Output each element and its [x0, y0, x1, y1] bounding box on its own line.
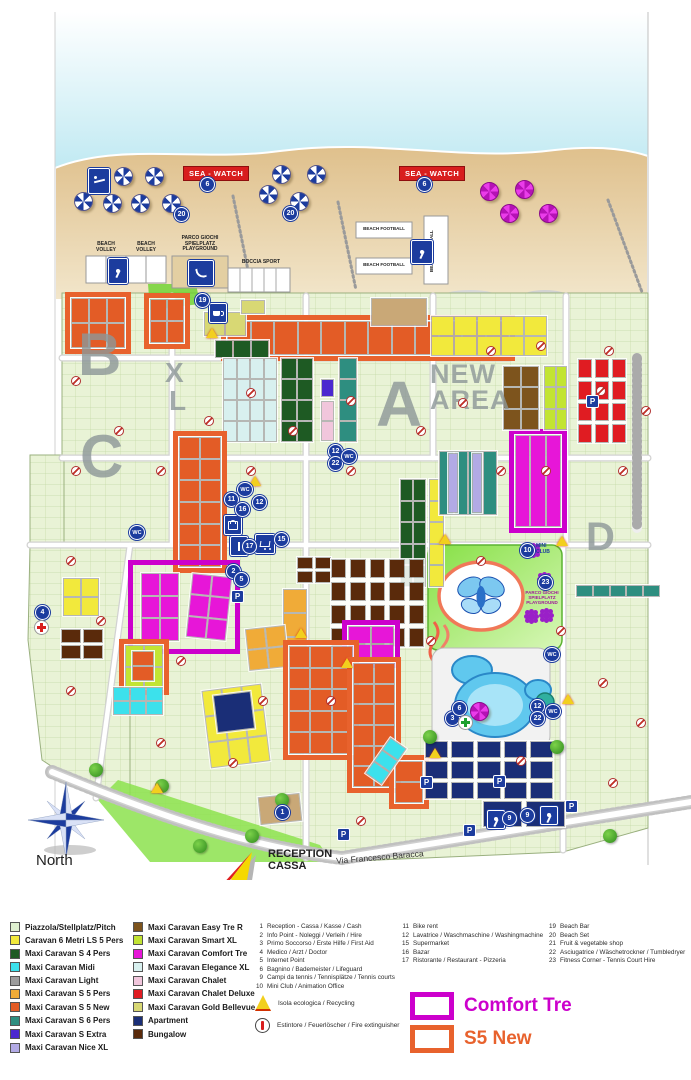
beach-umbrella-icon [470, 702, 489, 721]
pitch-marker-icon [636, 718, 646, 728]
pitch-block [311, 733, 330, 753]
pitch-cluster [214, 339, 270, 359]
reception-label: RECEPTION CASSA [268, 848, 332, 872]
highlight-outline-swatch [410, 1025, 454, 1053]
legend-pitch-type-row: Maxi Caravan Midi [10, 962, 123, 972]
pitch-block [410, 629, 423, 646]
pitch-block [332, 583, 345, 600]
beach-playground-label: PARCO GIOCHI SPIELPLATZ PLAYGROUND [172, 236, 228, 253]
legend-services-col2: 11Bike rent12Lavatrice / Waschmaschine /… [398, 923, 543, 966]
pitch-block [265, 359, 277, 378]
area-label: B [78, 326, 122, 383]
legend-pitch-type-row: Caravan 6 Metri LS 5 Pers [10, 935, 123, 945]
pitch-block [516, 436, 529, 526]
pitch-cluster [212, 690, 257, 735]
pitch-marker-icon [246, 388, 256, 398]
pitch-block [351, 583, 364, 600]
legend-service-number: 5 [252, 957, 263, 964]
pitch-block [525, 317, 546, 335]
legend-pitch-type-row: Maxi Caravan S 5 New [10, 1002, 123, 1012]
legend-service-label: Bazar [413, 949, 429, 956]
pitch-block [478, 317, 499, 335]
pitch-block [322, 322, 344, 354]
legend-service-label: Campi da tennis / Tennisplätze / Tennis … [267, 974, 395, 981]
legend-color-swatch [133, 935, 143, 945]
legend-service-label: Ristorante / Restaurant - Pizzeria [413, 957, 506, 964]
legend-pitch-type-row: Maxi Caravan Smart XL [133, 935, 255, 945]
pitch-block [505, 742, 526, 757]
map-badge-4: 4 [35, 605, 50, 620]
pitch-block [147, 702, 162, 714]
pitch-block [484, 452, 497, 514]
pitch-block [266, 626, 286, 647]
pitch-block [251, 359, 263, 378]
legend-pitch-type-label: Maxi Caravan Comfort Tre [148, 949, 247, 958]
area-label: D [586, 518, 616, 556]
pitch-cluster [112, 686, 164, 716]
highlighted-pitch-cluster [178, 436, 222, 568]
legend-service-label: Beach Set [560, 932, 589, 939]
pitch-block [531, 762, 552, 777]
pitch-cluster [244, 624, 290, 672]
pitch-block [168, 300, 183, 320]
campsite-map-page: BCXLADNEW AREA66202019122211121617152541… [0, 0, 691, 1080]
pitch-block [275, 322, 297, 354]
map-badge-12: 12 [252, 495, 267, 510]
beach-umbrella-icon [74, 192, 93, 211]
pitch-block [64, 579, 80, 596]
highlighted-pitch-cluster [347, 625, 395, 663]
north-label: North [36, 852, 73, 869]
legend-service-number: 21 [545, 940, 556, 947]
pitch-block [131, 688, 146, 700]
pitch-block [64, 598, 80, 615]
legend-service-number: 20 [545, 932, 556, 939]
supermarket-icon [255, 534, 275, 554]
pitch-block [242, 301, 264, 313]
legend-highlight-row: S5 New [410, 1025, 572, 1053]
pitch-block [161, 619, 178, 640]
pitch-marker-icon [96, 616, 106, 626]
pitch-block [189, 595, 209, 616]
pitch-marker-icon [258, 696, 268, 706]
pitch-block [340, 359, 356, 378]
pitch-block [147, 688, 162, 700]
pitch-block [142, 597, 159, 618]
legend-pitch-type-label: Maxi Caravan Smart XL [148, 936, 237, 945]
pitch-block [209, 597, 229, 618]
pitch-block [414, 523, 425, 543]
pitch-marker-icon [458, 398, 468, 408]
pitch-block [531, 742, 552, 757]
pitch-block [191, 574, 211, 595]
legend-service-number: 4 [252, 949, 263, 956]
pitch-block [611, 586, 626, 596]
pitch-block [351, 560, 364, 577]
pitch-block [201, 546, 220, 566]
pitch-block [161, 597, 178, 618]
tree-icon [245, 829, 259, 843]
pitch-cluster [62, 577, 100, 617]
legend-pitch-type-row: Maxi Caravan Gold Bellevue [133, 1002, 255, 1012]
pitch-block [201, 481, 220, 501]
parking-badge: P [565, 800, 578, 813]
pitch-block [234, 341, 250, 357]
pitch-marker-icon [516, 756, 526, 766]
pitch-block [238, 401, 250, 420]
legend-pitch-type-label: Maxi Caravan Nice XL [25, 1043, 108, 1052]
legend-highlights: Comfort TreS5 New [410, 992, 572, 1058]
beach-umbrella-icon [145, 167, 164, 186]
legend-service-row: 10Mini Club / Animation Office [252, 983, 395, 990]
legend-pitch-type-label: Piazzola/Stellplatz/Pitch [25, 923, 116, 932]
pitch-block [371, 606, 384, 623]
pitch-block [246, 628, 266, 649]
legend-service-row: 6Bagnino / Bademeister / Lifeguard [252, 966, 395, 973]
pitch-marker-icon [356, 816, 366, 826]
highlight-outline-swatch [410, 992, 454, 1020]
beach-umbrella-icon [480, 182, 499, 201]
pitch-marker-icon [476, 556, 486, 566]
pitch-marker-icon [536, 341, 546, 351]
legend-color-swatch [133, 949, 143, 959]
legend-color-swatch [133, 1016, 143, 1026]
pitch-cluster [222, 357, 278, 443]
legend-pitch-type-row: Maxi Caravan Chalet [133, 976, 255, 986]
highlight-label: S5 New [464, 1028, 532, 1050]
pitch-block [372, 299, 426, 325]
pitch-block [284, 590, 306, 612]
pitch-block [531, 783, 552, 798]
pitch-block [430, 545, 443, 565]
legend-color-swatch [10, 962, 20, 972]
fire-extinguisher-icon [255, 1018, 270, 1033]
legend-color-swatch [10, 935, 20, 945]
map-badge-6: 6 [417, 177, 432, 192]
wc-badge: WC [129, 525, 145, 540]
pitch-block [596, 425, 608, 442]
parking-badge: P [493, 775, 506, 788]
playground-equipment-icon [528, 613, 535, 620]
pitch-block [251, 401, 263, 420]
legend-pitch-type-row: Maxi Caravan Easy Tre R [133, 922, 255, 932]
area-label: C [80, 428, 124, 485]
pitch-block [455, 317, 476, 335]
pitch-block [557, 410, 567, 429]
legend-service-label: Medico / Arzt / Doctor [267, 949, 327, 956]
legend-services-col1: 1Reception - Cassa / Kasse / Cash2Info P… [252, 923, 395, 991]
pitch-block [390, 560, 403, 577]
pitch-marker-icon [604, 346, 614, 356]
pitch-block [201, 460, 220, 480]
pitch-block [505, 783, 526, 798]
pitch-block [311, 647, 330, 667]
pitch-cluster [575, 584, 661, 598]
map-badge-16: 16 [235, 502, 250, 517]
recycling-point-icon [439, 534, 451, 544]
map-badge-23: 23 [538, 575, 553, 590]
pitch-block [371, 583, 384, 600]
pitch-block [316, 558, 330, 568]
legend-service-number: 12 [398, 932, 409, 939]
pitch-block [452, 783, 473, 798]
pitch-block [354, 726, 373, 745]
playground-equipment-icon [543, 612, 550, 619]
pitch-block [375, 685, 394, 704]
pitch-block [211, 576, 231, 597]
pitch-marker-icon [426, 636, 436, 646]
beach-umbrella-icon [515, 180, 534, 199]
pitch-block [351, 606, 364, 623]
pitch-block [238, 422, 250, 441]
pitch-marker-icon [346, 466, 356, 476]
legend-color-swatch [133, 976, 143, 986]
legend-note-label: Estintore / Feuerlöscher / Fire extingui… [277, 1022, 399, 1029]
pitch-block [522, 410, 538, 429]
pitch-block [478, 742, 499, 757]
beach-umbrella-icon [272, 165, 291, 184]
pitch-block [265, 380, 277, 399]
legend-service-number: 10 [252, 983, 263, 990]
legend-service-label: Fruit & vegetable shop [560, 940, 623, 947]
map-badge-10: 10 [520, 543, 535, 558]
legend-pitch-type-row: Maxi Caravan Elegance XL [133, 962, 255, 972]
legend-color-swatch [133, 922, 143, 932]
legend-color-swatch [10, 1029, 20, 1039]
pitch-block [187, 617, 207, 638]
pitch-block [644, 586, 659, 596]
legend-notes: Isola ecologica / RecyclingEstintore / F… [255, 995, 399, 1040]
pitch-block [180, 503, 199, 523]
legend-pitch-type-row: Maxi Caravan S 4 Pers [10, 949, 123, 959]
pitch-block [114, 702, 129, 714]
pitch-marker-icon [66, 556, 76, 566]
legend-service-row: 9Campi da tennis / Tennisplätze / Tennis… [252, 974, 395, 981]
pitch-block [401, 523, 412, 543]
pitch-block [340, 422, 356, 441]
pitch-block [224, 380, 236, 399]
tree-icon [603, 829, 617, 843]
legend-service-row: 16Bazar [398, 949, 543, 956]
pitch-block [531, 436, 544, 526]
pitch-block [207, 619, 227, 640]
pitch-block [410, 606, 423, 623]
pitch-block [430, 566, 443, 586]
legend-pitch-type-label: Maxi Caravan S 5 New [25, 1003, 109, 1012]
legend-service-row: 5Internet Point [252, 957, 395, 964]
legend-pitch-type-row: Maxi Caravan S Extra [10, 1029, 123, 1039]
pitch-block [333, 733, 352, 753]
parking-badge: P [420, 776, 433, 789]
pitch-block [151, 300, 166, 320]
legend-pitch-type-label: Maxi Caravan Chalet Deluxe [148, 989, 255, 998]
pitch-cluster [185, 572, 234, 642]
pitch-block [557, 388, 567, 407]
map-badge-20: 20 [283, 206, 298, 221]
sunbed-icon [88, 168, 110, 194]
pitch-marker-icon [71, 376, 81, 386]
legend-service-label: Supermarket [413, 940, 449, 947]
sea-watch-sign: SEA - WATCH [399, 166, 465, 181]
pitch-block [180, 460, 199, 480]
legend-pitch-type-label: Maxi Caravan S 4 Pers [25, 949, 110, 958]
pitch-block [298, 401, 312, 420]
parking-badge: P [337, 828, 350, 841]
legend-service-label: Lavatrice / Waschmaschine / Washingmachi… [413, 932, 543, 939]
legend-service-row: 12Lavatrice / Waschmaschine / Washingmac… [398, 932, 543, 939]
legend-color-swatch [10, 1002, 20, 1012]
pitch-block [410, 560, 423, 577]
beach-umbrella-icon [539, 204, 558, 223]
wc-badge: WC [237, 482, 253, 497]
pitch-cluster [577, 358, 627, 444]
pitch-block [371, 560, 384, 577]
tree-icon [550, 740, 564, 754]
pitch-block [180, 481, 199, 501]
recycling-point-icon [562, 694, 574, 704]
parking-badge: P [463, 824, 476, 837]
pitch-block [201, 525, 220, 545]
legend-pitch-type-label: Maxi Caravan Easy Tre R [148, 923, 243, 932]
recycling-point-icon [556, 536, 568, 546]
pitch-cluster [240, 299, 266, 315]
legend-pitch-type-row: Maxi Caravan Nice XL [10, 1043, 123, 1053]
pitch-block [290, 669, 309, 689]
legend-pitch-type-row: Piazzola/Stellplatz/Pitch [10, 922, 123, 932]
legend-service-label: Info Point - Noleggi / Verleih / Hire [267, 932, 362, 939]
pitch-block [90, 299, 106, 322]
pitch-block [473, 454, 481, 512]
legend-pitch-type-label: Maxi Caravan Light [25, 976, 98, 985]
legend-pitch-type-row: Bungalow [133, 1029, 255, 1039]
pitch-block [613, 425, 625, 442]
pitch-block [346, 322, 368, 354]
pitch-marker-icon [71, 466, 81, 476]
pitch-block [596, 360, 608, 377]
legend-pitch-type-row: Maxi Caravan Comfort Tre [133, 949, 255, 959]
pitch-block [455, 337, 476, 355]
pitch-marker-icon [541, 466, 551, 476]
pitch-block [180, 438, 199, 458]
legend-service-row: 15Supermarket [398, 940, 543, 947]
pitch-block [249, 736, 270, 762]
pitch-block [396, 762, 422, 781]
highlighted-pitch-cluster [149, 298, 185, 344]
legend-service-label: Internet Point [267, 957, 304, 964]
pitch-block [224, 422, 236, 441]
pitch-block [133, 652, 153, 665]
pitch-block [82, 598, 98, 615]
pitch-block [142, 619, 159, 640]
pitch-block [390, 583, 403, 600]
legend-service-row: 1Reception - Cassa / Kasse / Cash [252, 923, 395, 930]
recycling-point-icon [151, 783, 163, 793]
map-playground-label: PARCO GIOCHI SPIELPLATZ PLAYGROUND [516, 590, 568, 605]
pitch-cluster [60, 628, 104, 660]
legend-color-swatch [133, 989, 143, 999]
pitch-block [290, 690, 309, 710]
pitch-block [452, 762, 473, 777]
pitch-block [452, 742, 473, 757]
pitch-block [282, 359, 296, 378]
pitch-block [332, 629, 345, 646]
legend-pitch-type-label: Maxi Caravan S Extra [25, 1030, 106, 1039]
pitch-block [545, 410, 555, 429]
pitch-block [298, 359, 312, 378]
pitch-block [390, 606, 403, 623]
tree-icon [193, 839, 207, 853]
beach-umbrella-icon [259, 185, 278, 204]
legend-pitch-type-label: Maxi Caravan S 6 Pers [25, 1016, 110, 1025]
legend-service-number: 11 [398, 923, 409, 930]
pharmacy-cross-icon [458, 715, 473, 730]
pitch-block [248, 649, 268, 670]
legend-note-row: Isola ecologica / Recycling [255, 995, 399, 1011]
map-badge-6: 6 [452, 701, 467, 716]
pitch-block [432, 317, 453, 335]
pitch-block [290, 647, 309, 667]
legend-note-row: Estintore / Feuerlöscher / Fire extingui… [255, 1018, 399, 1033]
recycling-point-icon [429, 748, 441, 758]
pitch-block [224, 401, 236, 420]
legend-service-row: 17Ristorante / Restaurant - Pizzeria [398, 957, 543, 964]
pitch-block [226, 313, 245, 335]
recycling-point-icon [295, 628, 307, 638]
pitch-marker-icon [608, 778, 618, 788]
pitch-block [298, 558, 312, 568]
pitch-block [84, 630, 102, 642]
map-badge-17: 17 [242, 539, 257, 554]
legend-service-row: 22Asciugatrice / Wäschetrockner / Tumble… [545, 949, 685, 956]
pitch-block [216, 341, 232, 357]
legend-service-row: 19Beach Bar [545, 923, 685, 930]
legend-service-number: 22 [545, 949, 556, 956]
area-label: X [165, 360, 185, 387]
pitch-block [322, 402, 333, 420]
pitch-block [349, 627, 370, 643]
legend-pitch-type-row: Maxi Caravan Light [10, 976, 123, 986]
pitch-block [131, 702, 146, 714]
pitch-marker-icon [416, 426, 426, 436]
pitch-block [114, 688, 129, 700]
legend-pitch-types-col1: Piazzola/Stellplatz/PitchCaravan 6 Metri… [10, 922, 123, 1056]
wc-badge: WC [545, 704, 561, 719]
pitch-block [298, 572, 312, 582]
legend-pitch-type-row: Apartment [133, 1016, 255, 1026]
pitch-marker-icon [246, 466, 256, 476]
beach-umbrella-icon [103, 194, 122, 213]
tree-icon [423, 730, 437, 744]
pitch-block [133, 667, 153, 680]
pitch-block [322, 380, 333, 396]
pitch-block [375, 705, 394, 724]
pitch-block [62, 630, 80, 642]
map-badge-9: 9 [502, 811, 517, 826]
recycling-point-icon [206, 328, 218, 338]
pitch-block [238, 359, 250, 378]
pitch-block [180, 525, 199, 545]
area-label: NEW AREA [430, 362, 511, 413]
legend-pitch-types-col2: Maxi Caravan Easy Tre RMaxi Caravan Smar… [133, 922, 255, 1043]
legend-pitch-type-label: Bungalow [148, 1030, 186, 1039]
beach-umbrella-icon [131, 194, 150, 213]
pitch-block [579, 425, 591, 442]
pitch-block [322, 422, 333, 440]
pitch-cluster [471, 452, 483, 514]
tennis-player-icon [540, 806, 558, 825]
legend-color-swatch [10, 976, 20, 986]
pitch-block [168, 322, 183, 342]
